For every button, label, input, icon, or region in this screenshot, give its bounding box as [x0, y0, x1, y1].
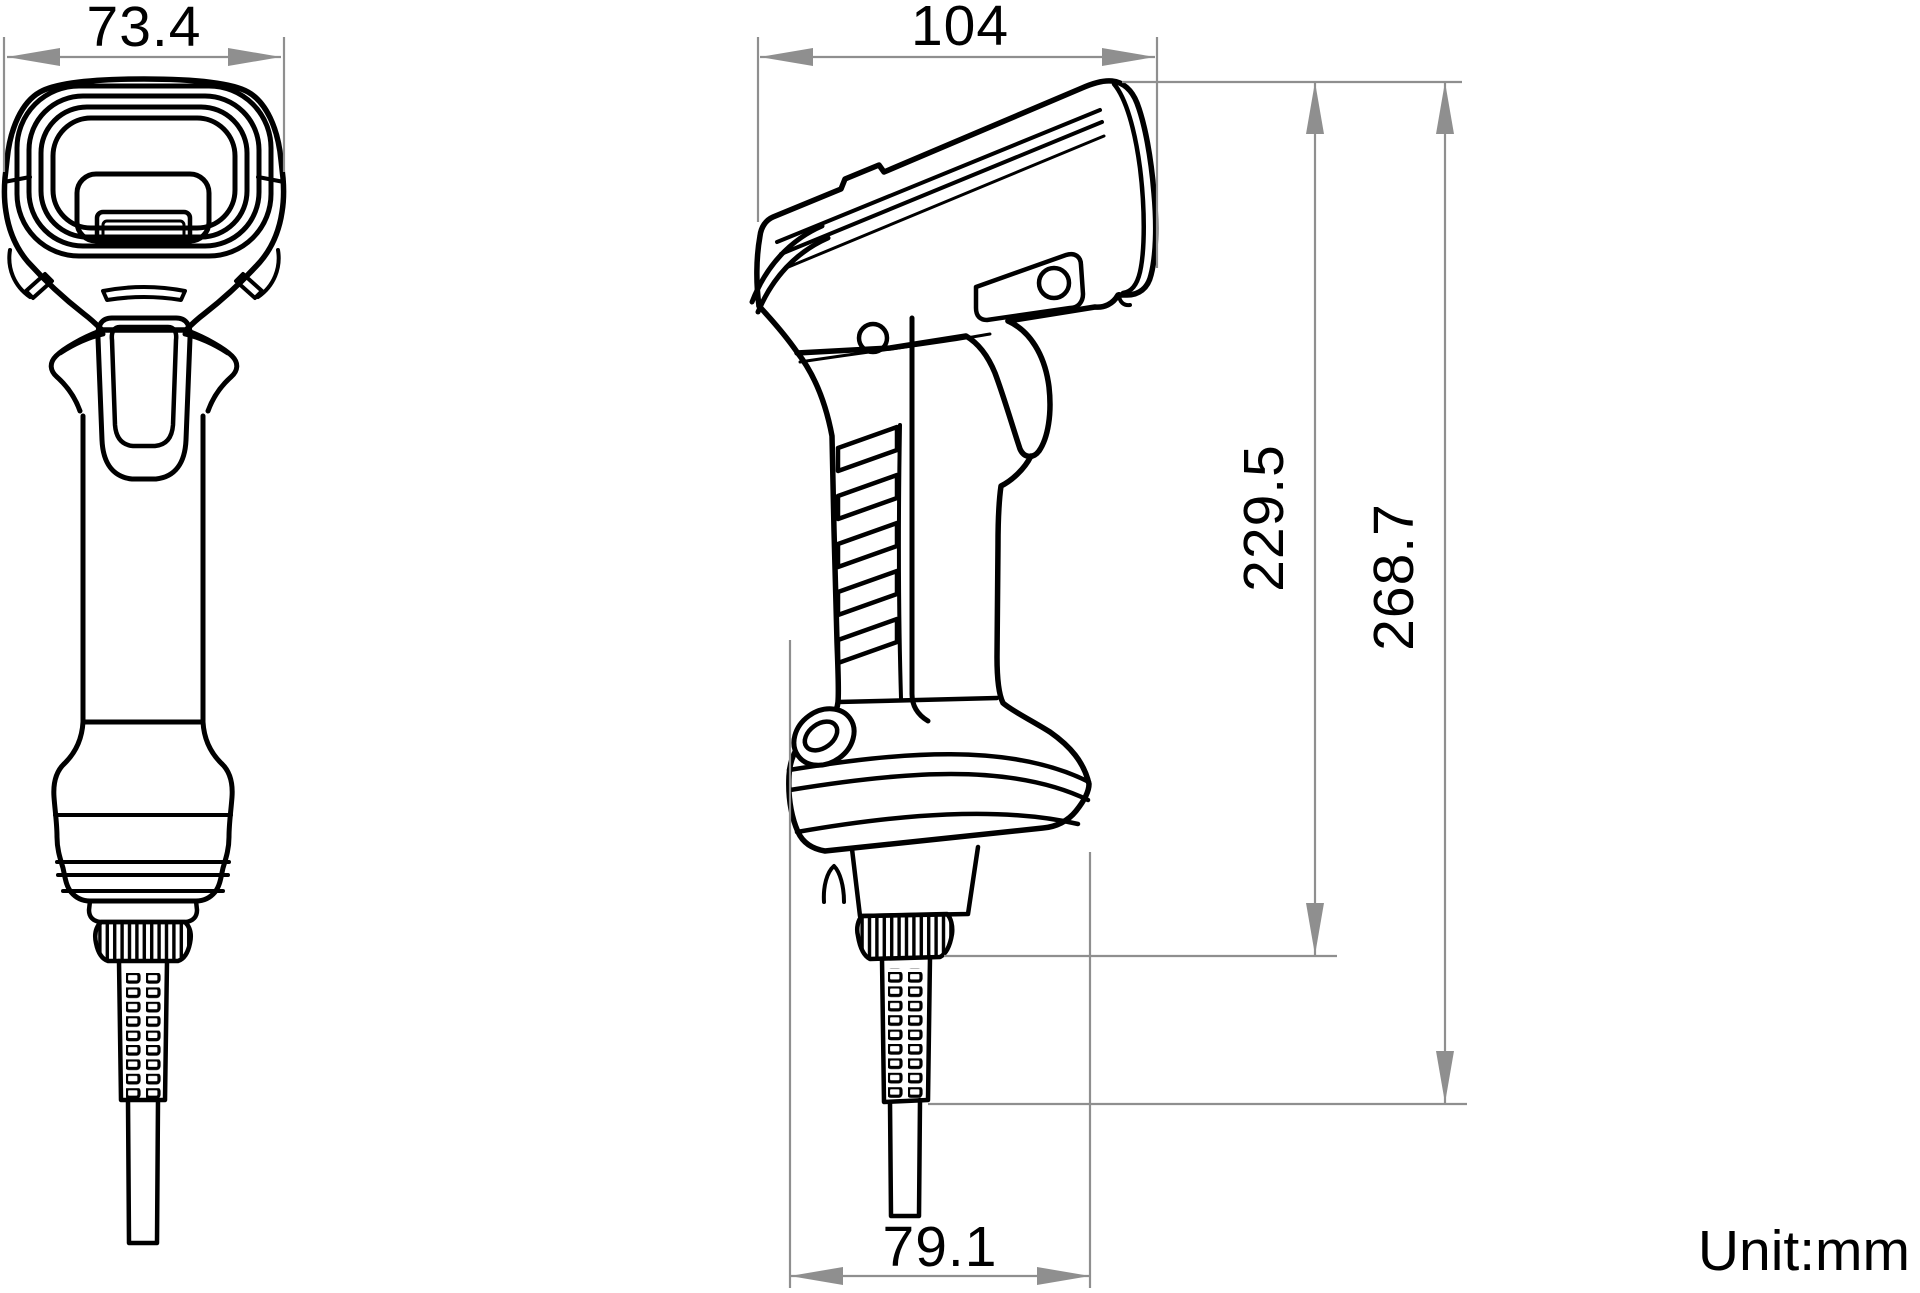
front-strain-relief-collar	[95, 922, 191, 961]
dim-front-width: 73.4	[87, 0, 202, 59]
drawing-canvas: 73.4 104 229.5 268.7 79.1 Unit:mm	[0, 0, 1920, 1293]
front-handle	[83, 416, 203, 722]
front-trigger-inner	[112, 327, 176, 446]
side-grip-ribs	[838, 427, 897, 663]
side-lanyard-loop	[783, 697, 865, 777]
front-bumper-rings	[17, 86, 271, 256]
side-grip-base-outline	[759, 306, 1089, 851]
unit-label: Unit:mm	[1698, 1219, 1910, 1283]
side-base-tier	[852, 847, 978, 916]
front-view	[4, 79, 284, 1243]
dim-side-length: 104	[911, 0, 1009, 58]
dim-overall-height: 268.7	[1362, 503, 1426, 651]
side-grip-lines	[838, 318, 997, 721]
side-strain-relief-collar	[857, 914, 952, 959]
front-cable-boot-grooves	[124, 970, 164, 1098]
side-cable-boot-grooves	[886, 968, 926, 1098]
side-base-bands	[789, 754, 1089, 832]
dim-base-depth: 79.1	[883, 1215, 998, 1279]
side-cable	[890, 1100, 920, 1216]
side-base-arch	[824, 866, 844, 902]
side-head-outline	[757, 81, 1156, 321]
side-trigger	[797, 321, 1050, 456]
side-head-seams	[777, 110, 1104, 268]
side-screw-hole-right	[1039, 268, 1069, 298]
dimension-lines	[4, 37, 1467, 1288]
technical-drawing: 73.4 104 229.5 268.7 79.1 Unit:mm	[0, 0, 1920, 1293]
side-view	[752, 81, 1156, 1216]
front-base	[54, 722, 232, 922]
dim-body-height: 229.5	[1232, 444, 1296, 592]
front-cable	[128, 1100, 158, 1243]
front-shoulders	[51, 331, 237, 411]
